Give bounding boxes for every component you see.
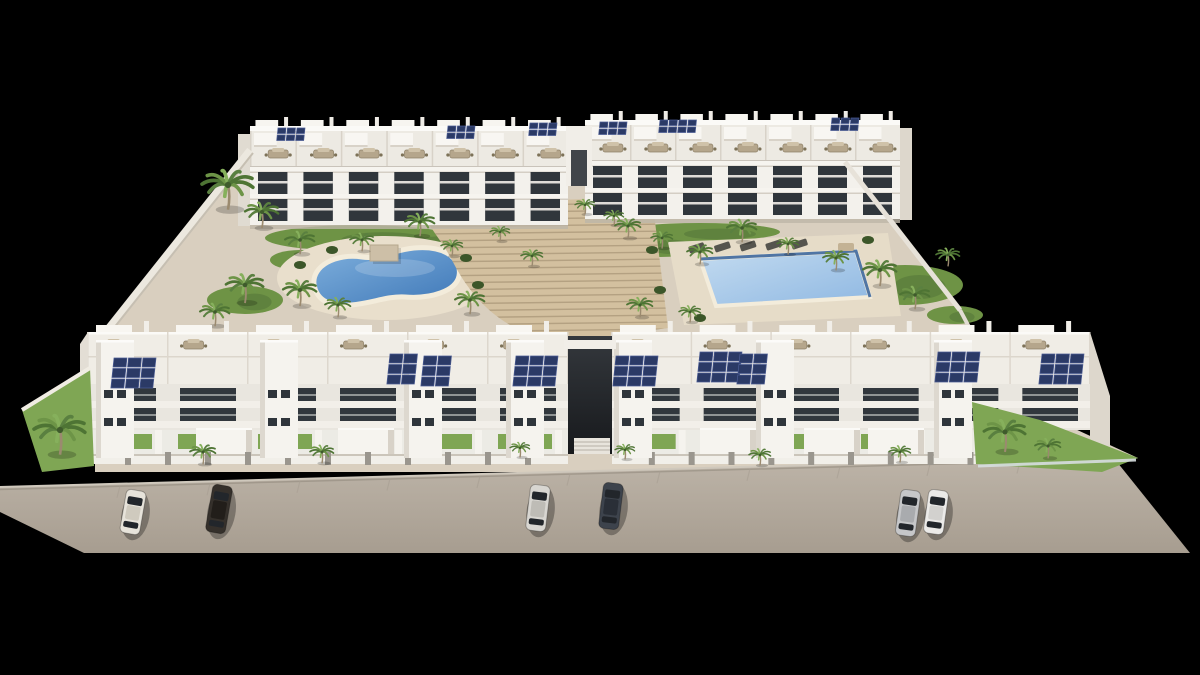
- shrub: [326, 246, 338, 254]
- tower-window: [412, 390, 421, 398]
- tower-window: [514, 418, 523, 426]
- solar-panel-array: [1039, 354, 1084, 384]
- solar-panel-array: [697, 352, 742, 382]
- central-passage: [564, 336, 616, 454]
- shrub: [646, 246, 658, 254]
- street-wall-post: [245, 452, 251, 465]
- shrub: [460, 254, 472, 262]
- tower-window: [104, 390, 113, 398]
- tower-window: [281, 390, 290, 398]
- tower-window: [635, 390, 644, 398]
- street-wall-post: [848, 452, 854, 465]
- solar-panel-array: [111, 358, 156, 388]
- shrub: [862, 236, 874, 244]
- tower-window: [514, 390, 523, 398]
- tower-window: [527, 390, 536, 398]
- tower-window: [268, 418, 277, 426]
- tower-window: [622, 418, 631, 426]
- car-roof: [900, 505, 916, 523]
- street-wall-post: [165, 452, 171, 465]
- tower-window: [268, 390, 277, 398]
- tower-window: [527, 418, 536, 426]
- solar-panel-array: [935, 352, 980, 382]
- architectural-render-image: [0, 0, 1200, 675]
- tower-window: [942, 418, 951, 426]
- street-wall-post: [485, 452, 491, 465]
- car-roof: [603, 498, 619, 516]
- sun-lounger: [838, 243, 854, 251]
- shrub: [654, 286, 666, 294]
- street-wall-post: [808, 452, 814, 465]
- solar-panel-array: [513, 356, 558, 386]
- car-roof: [125, 505, 141, 521]
- rear-right-building: [585, 111, 912, 223]
- tower-window: [281, 418, 290, 426]
- tower-window: [764, 418, 773, 426]
- stair-tower: [260, 340, 298, 458]
- garage-box: [338, 428, 394, 455]
- render-canvas: [0, 0, 1200, 675]
- pool-water: [700, 251, 870, 306]
- garage-box: [804, 428, 860, 455]
- rear-gap-link: [566, 126, 592, 186]
- tower-window: [425, 418, 434, 426]
- tower-window: [777, 390, 786, 398]
- tower-window: [955, 390, 964, 398]
- tower-window: [425, 390, 434, 398]
- garage-box: [700, 428, 756, 455]
- tower-window: [622, 390, 631, 398]
- tower-window: [117, 390, 126, 398]
- front-left-building: [87, 321, 569, 465]
- tower-window: [764, 390, 773, 398]
- street-wall-post: [729, 452, 735, 465]
- tower-window: [942, 390, 951, 398]
- street-wall-post: [445, 452, 451, 465]
- solar-panel-array: [613, 356, 658, 386]
- car-roof: [928, 505, 944, 521]
- tower-window: [117, 418, 126, 426]
- tower-window: [955, 418, 964, 426]
- shrub: [294, 261, 306, 269]
- street-wall-post: [689, 452, 695, 465]
- car-roof: [530, 500, 546, 518]
- street-wall-post: [928, 452, 934, 465]
- street-wall-post: [365, 452, 371, 465]
- shrub: [472, 281, 484, 289]
- tower-window: [635, 418, 644, 426]
- pergola: [370, 245, 401, 264]
- tower-window: [777, 418, 786, 426]
- tower-window: [412, 418, 421, 426]
- tower-window: [104, 418, 113, 426]
